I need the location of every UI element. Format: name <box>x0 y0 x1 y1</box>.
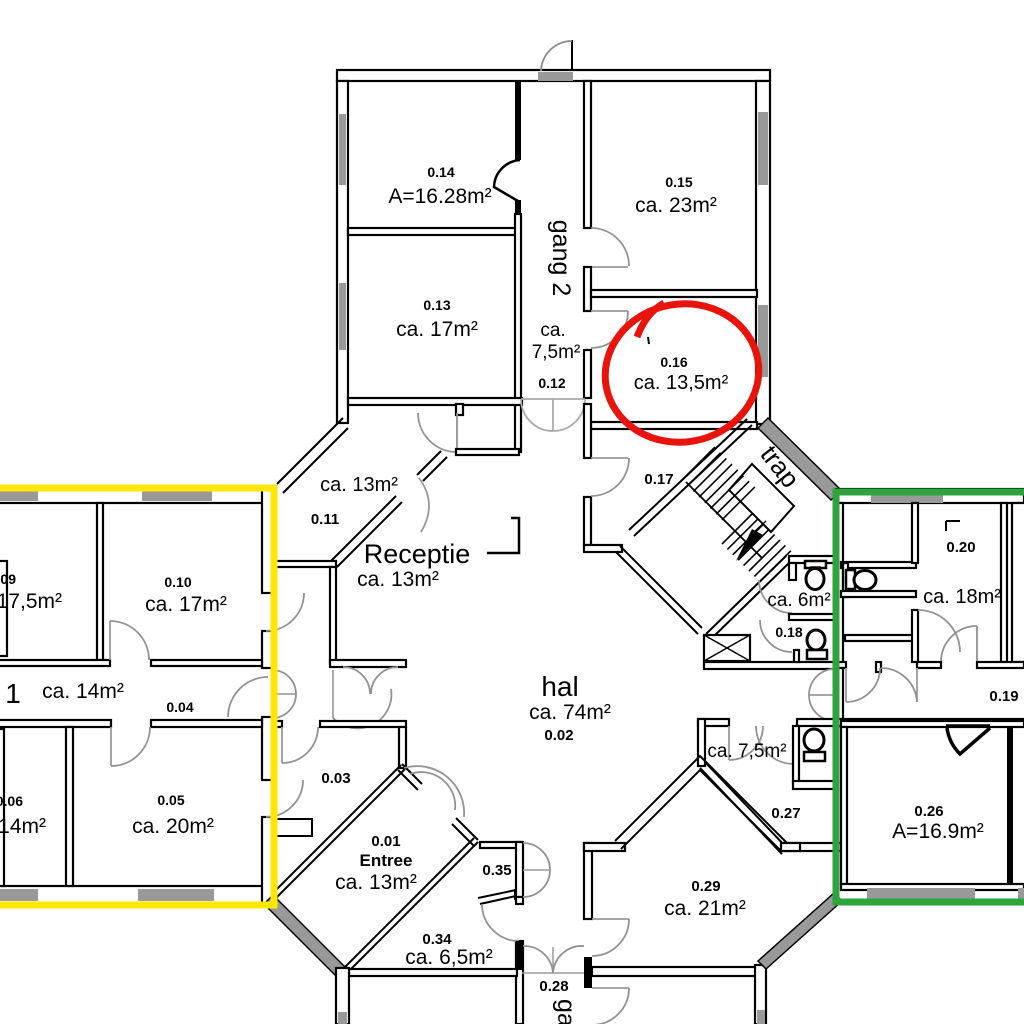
svg-text:ca. 6,5m²: ca. 6,5m² <box>405 946 493 969</box>
svg-text:hal: hal <box>541 671 578 702</box>
svg-text:ca. 14m²: ca. 14m² <box>42 680 124 703</box>
svg-text:0.27: 0.27 <box>771 805 800 822</box>
svg-text:0.06: 0.06 <box>0 793 23 809</box>
svg-text:ca. 17m²: ca. 17m² <box>396 318 478 341</box>
svg-text:0.01: 0.01 <box>371 833 400 850</box>
svg-text:0.17: 0.17 <box>644 471 673 488</box>
svg-text:0.35: 0.35 <box>482 862 511 879</box>
svg-text:1: 1 <box>5 678 21 709</box>
svg-text:ca. 21m²: ca. 21m² <box>664 897 746 920</box>
svg-text:0.11: 0.11 <box>311 511 339 528</box>
svg-text:ca. 17m²: ca. 17m² <box>145 593 227 616</box>
svg-text:0.09: 0.09 <box>0 571 16 587</box>
svg-text:ca. 18m²: ca. 18m² <box>923 586 1001 608</box>
svg-text:0.20: 0.20 <box>946 539 975 556</box>
svg-text:0.05: 0.05 <box>157 792 184 808</box>
svg-text:0.18: 0.18 <box>775 624 802 640</box>
svg-text:ca.: ca. <box>540 320 565 341</box>
svg-text:ca. 7,5m²: ca. 7,5m² <box>707 741 786 762</box>
svg-text:ca. 20m²: ca. 20m² <box>132 815 214 838</box>
svg-text:ca. 17,5m²: ca. 17,5m² <box>0 590 62 613</box>
svg-text:ca. 13m²: ca. 13m² <box>335 871 417 894</box>
svg-text:0.12: 0.12 <box>538 375 565 391</box>
svg-text:0.16: 0.16 <box>660 354 687 370</box>
svg-text:0.15: 0.15 <box>665 174 692 190</box>
svg-text:0.04: 0.04 <box>166 699 193 715</box>
svg-text:ca. 13m²: ca. 13m² <box>357 568 439 591</box>
svg-text:ca. 13m²: ca. 13m² <box>320 474 398 496</box>
svg-text:0.26: 0.26 <box>914 803 943 820</box>
svg-text:ca. 14m²: ca. 14m² <box>0 815 46 838</box>
svg-text:Receptie: Receptie <box>364 539 471 569</box>
svg-text:0.13: 0.13 <box>423 297 450 313</box>
svg-text:ca. 23m²: ca. 23m² <box>635 194 717 217</box>
svg-text:ca. 6m²: ca. 6m² <box>767 590 830 611</box>
svg-text:0.28: 0.28 <box>539 978 568 995</box>
svg-text:0.03: 0.03 <box>321 770 350 787</box>
svg-text:7,5m²: 7,5m² <box>532 342 581 363</box>
svg-text:gang 2: gang 2 <box>547 220 575 296</box>
svg-text:gang 3: gang 3 <box>552 999 580 1024</box>
svg-text:A=16.9m²: A=16.9m² <box>892 820 984 843</box>
svg-text:0.29: 0.29 <box>691 878 720 895</box>
svg-text:0.19: 0.19 <box>989 688 1018 705</box>
svg-text:A=16.28m²: A=16.28m² <box>388 185 491 208</box>
svg-text:0.14: 0.14 <box>427 164 454 180</box>
svg-text:0.02: 0.02 <box>544 727 573 744</box>
svg-text:ca. 74m²: ca. 74m² <box>529 701 611 724</box>
svg-text:0.10: 0.10 <box>164 574 191 590</box>
svg-text:ca. 13,5m²: ca. 13,5m² <box>634 372 729 394</box>
svg-text:Entree: Entree <box>360 851 413 870</box>
